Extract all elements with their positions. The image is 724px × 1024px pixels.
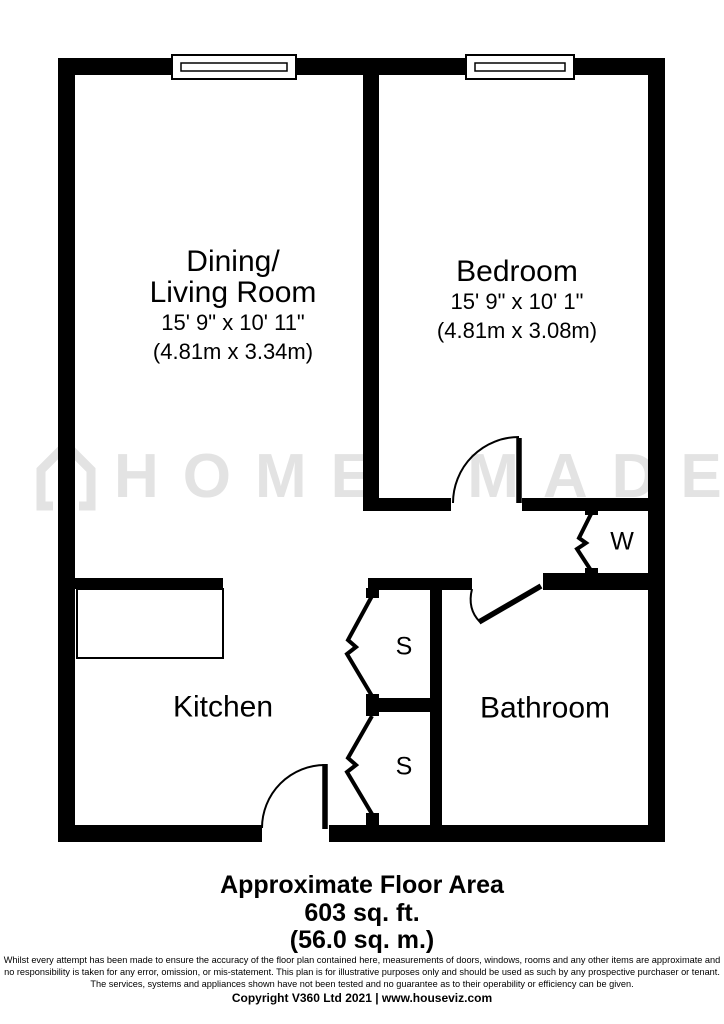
wall-bathroom-top bbox=[543, 578, 648, 590]
floor-area-block: Approximate Floor Area 603 sq. ft. (56.0… bbox=[0, 872, 724, 955]
wall-bathroom-left bbox=[430, 578, 442, 825]
living-room-dims-metric: (4.81m x 3.34m) bbox=[150, 338, 317, 365]
storage2-label: S bbox=[396, 753, 413, 782]
copyright-line: Copyright V360 Ltd 2021 | www.houseviz.c… bbox=[0, 991, 724, 1005]
outer-wall-bottom-left bbox=[58, 825, 262, 842]
floorplan-canvas: HOME MADE bbox=[0, 0, 724, 1024]
storage1-bifold-door bbox=[347, 596, 372, 696]
outer-wall-right bbox=[648, 58, 665, 842]
kitchen-counter bbox=[77, 589, 223, 658]
wall-bedroom-bottom-left bbox=[363, 498, 451, 511]
bedroom-door-swing-arc bbox=[453, 437, 519, 503]
living-room-name-line2: Living Room bbox=[150, 277, 317, 308]
floor-area-title: Approximate Floor Area bbox=[0, 872, 724, 900]
storage-jamb-middle bbox=[366, 694, 379, 716]
floor-area-sqm: (56.0 sq. m.) bbox=[0, 927, 724, 955]
storage2-bifold-door bbox=[347, 716, 372, 814]
window-glazing bbox=[475, 63, 565, 71]
wardrobe-bifold-door bbox=[577, 512, 592, 572]
bedroom-label-block: Bedroom 15' 9" x 10' 1" (4.81m x 3.08m) bbox=[437, 256, 597, 344]
bedroom-dims-imperial: 15' 9" x 10' 1" bbox=[437, 287, 597, 317]
living-room-label-block: Dining/ Living Room 15' 9" x 10' 11" (4.… bbox=[150, 246, 317, 365]
window-bedroom bbox=[466, 55, 574, 79]
outer-wall-bottom-right bbox=[329, 825, 665, 842]
window-glazing bbox=[181, 63, 287, 71]
wall-kitchen-divider bbox=[75, 578, 223, 589]
wall-storage-top bbox=[368, 578, 472, 590]
bathroom-label: Bathroom bbox=[480, 693, 610, 724]
wall-living-bedroom-divider bbox=[363, 75, 379, 510]
bathroom-door-leaf bbox=[479, 586, 541, 622]
disclaimer-line2: no responsibility is taken for any error… bbox=[4, 966, 720, 978]
bedroom-dims-metric: (4.81m x 3.08m) bbox=[437, 317, 597, 344]
living-room-dims-imperial: 15' 9" x 10' 11" bbox=[150, 308, 317, 338]
bedroom-name: Bedroom bbox=[437, 256, 597, 287]
storage1-label: S bbox=[396, 633, 413, 662]
entrance-door-swing-arc bbox=[262, 765, 325, 828]
outer-wall-left bbox=[58, 58, 75, 842]
disclaimer-line3: The services, systems and appliances sho… bbox=[90, 978, 633, 990]
window-living-room bbox=[172, 55, 296, 79]
disclaimer-line1: Whilst every attempt has been made to en… bbox=[4, 954, 721, 966]
bathroom-door-swing-arc bbox=[471, 589, 480, 622]
storage-jamb-bottom bbox=[366, 813, 379, 825]
kitchen-label: Kitchen bbox=[173, 692, 273, 723]
floor-area-sqft: 603 sq. ft. bbox=[0, 900, 724, 928]
wardrobe-label: W bbox=[610, 528, 634, 557]
living-room-name-line1: Dining/ bbox=[150, 246, 317, 277]
